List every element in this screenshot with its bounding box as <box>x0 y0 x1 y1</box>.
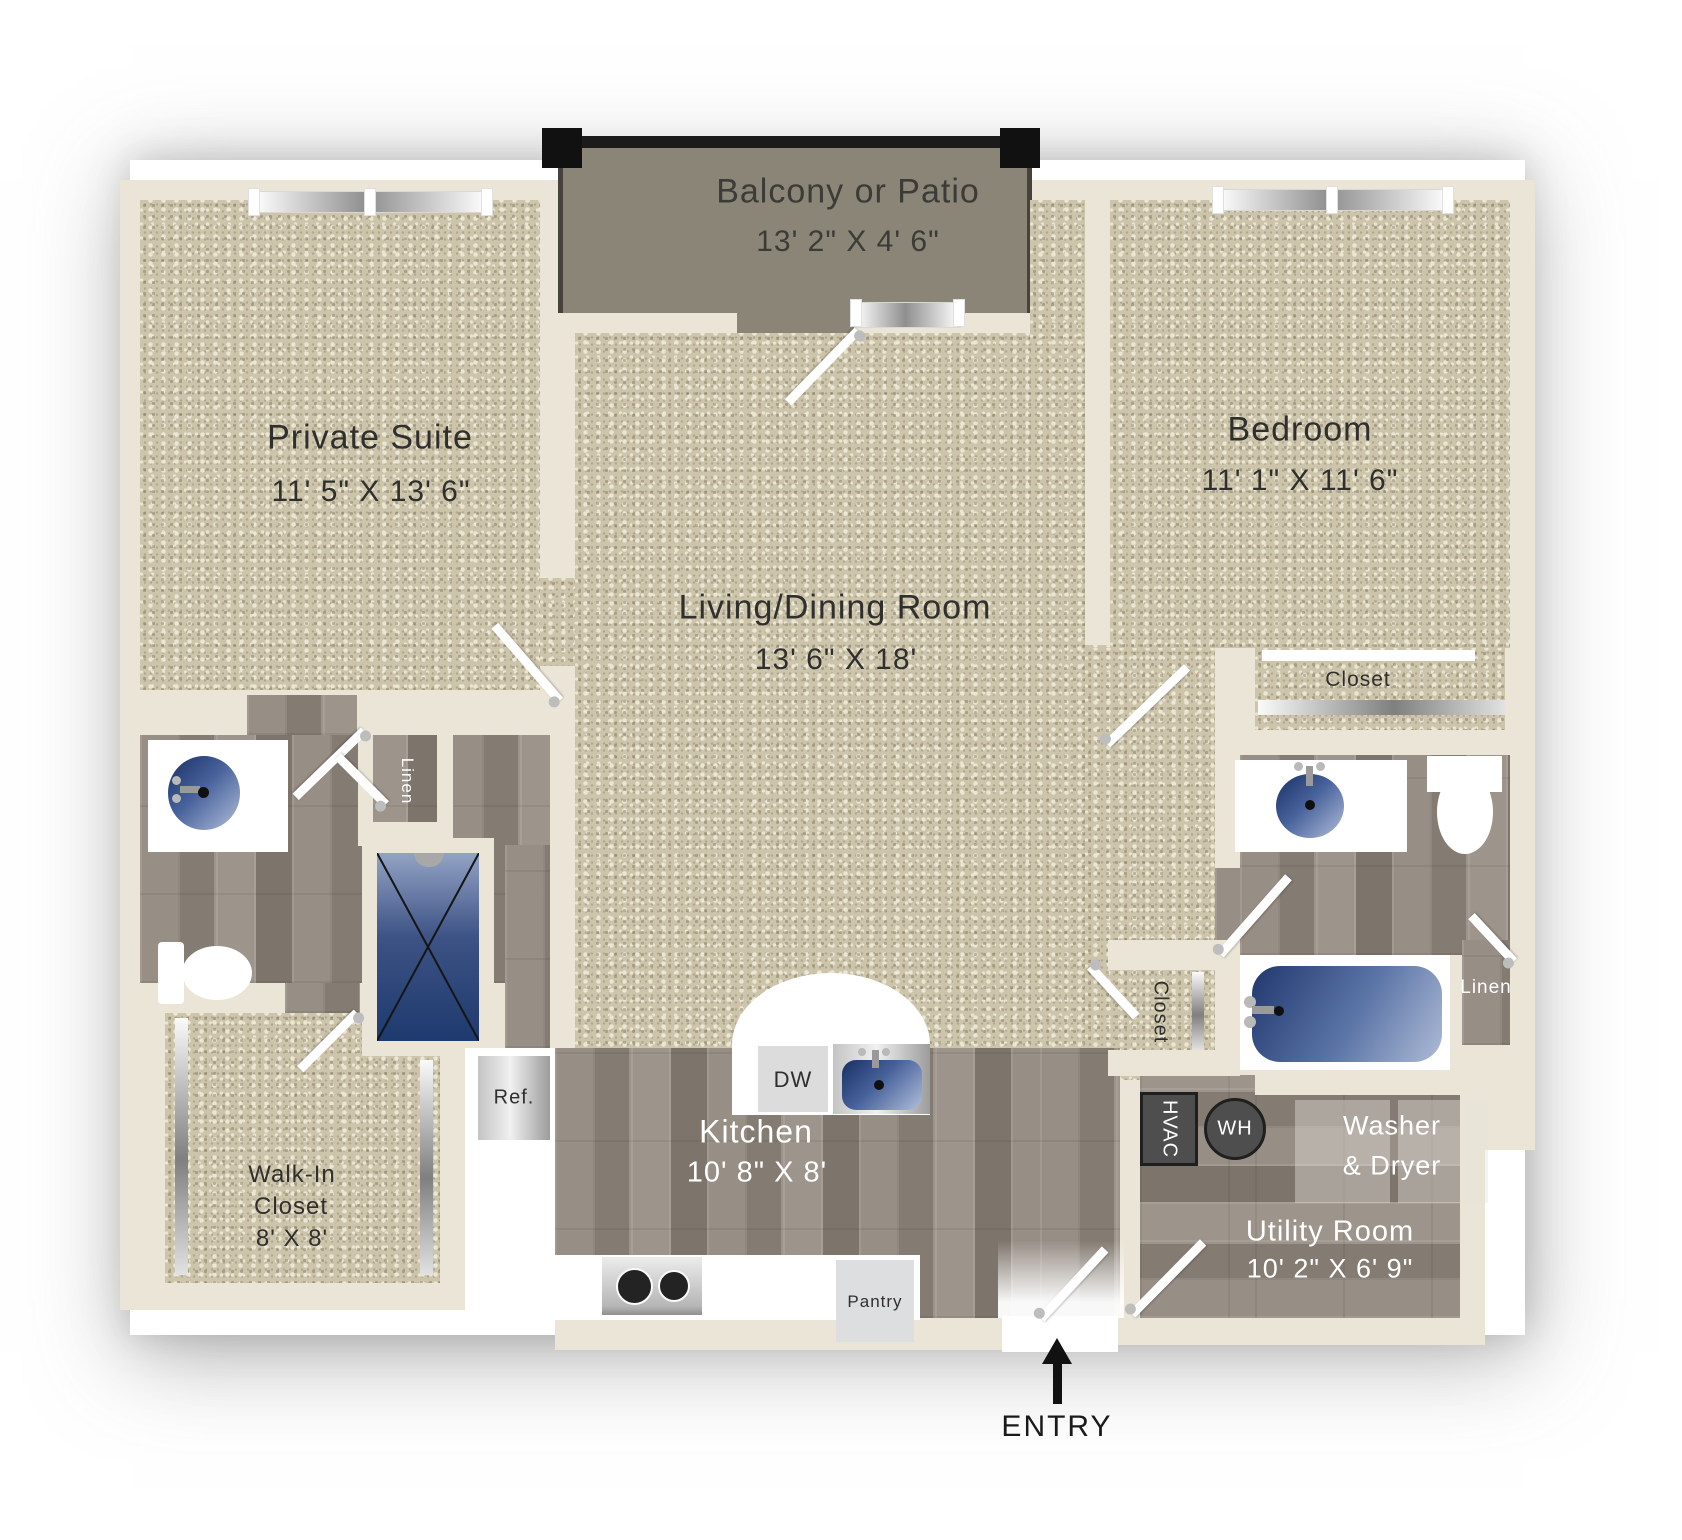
hall-closet-rod <box>1192 972 1204 1050</box>
bedroom-label: Bedroom <box>1228 411 1373 450</box>
kitchen-sink-drain <box>874 1080 884 1090</box>
utility-room-dims: 10' 2" X 6' 9" <box>1247 1254 1414 1285</box>
balcony-railing <box>552 136 1030 148</box>
entry-arrow-stem <box>1053 1362 1062 1404</box>
shower <box>377 853 479 1041</box>
bedroom-dims: 11' 1" X 11' 6" <box>1202 464 1399 498</box>
dishwasher-label: DW <box>774 1067 813 1093</box>
walkin-rod-right <box>420 1060 433 1275</box>
linen-left-wall-b <box>437 735 453 827</box>
utility-room-label: Utility Room <box>1246 1216 1414 1249</box>
linen-left-label: Linen <box>397 758 417 805</box>
bedroom-door-opening <box>1085 645 1110 648</box>
bedroom-closet-shelf <box>1262 650 1475 661</box>
living-dining-dims: 13' 6" X 18' <box>755 643 918 677</box>
refrigerator-label: Ref. <box>494 1087 535 1110</box>
burner-icon <box>616 1268 653 1305</box>
kitchen-dims: 10' 8" X 8' <box>687 1157 827 1190</box>
linen-right-label: Linen <box>1460 977 1512 999</box>
bath1-sink-drain <box>198 787 209 798</box>
walkin-opening <box>285 983 360 1013</box>
living-room-floor-right <box>1030 200 1085 340</box>
balcony-dims: 13' 2" X 4' 6" <box>756 225 940 259</box>
balcony-post-right <box>1000 128 1040 168</box>
pantry-label: Pantry <box>847 1292 902 1312</box>
walkin-label-line2: Closet <box>254 1193 328 1221</box>
tub-drain <box>1274 1006 1284 1016</box>
washer-label: Washer <box>1343 1111 1441 1142</box>
bedroom-closet-label: Closet <box>1325 668 1391 692</box>
burner-icon <box>658 1270 690 1302</box>
living-dining-label: Living/Dining Room <box>679 589 992 628</box>
floor-plan: Balcony or Patio 13' 2" X 4' 6" Private … <box>0 0 1682 1540</box>
toilet2-bowl <box>1437 770 1493 854</box>
suite-bath-opening <box>247 695 357 735</box>
balcony-post-left <box>542 128 582 168</box>
private-suite-label: Private Suite <box>267 419 473 458</box>
toilet1-tank <box>158 942 184 1004</box>
water-heater-label: WH <box>1217 1118 1252 1141</box>
balcony-opening <box>737 303 855 333</box>
hvac-label: HVAC <box>1158 1100 1181 1158</box>
hall-closet-label: Closet <box>1149 981 1172 1044</box>
kitchen-label: Kitchen <box>699 1114 813 1151</box>
private-suite-dims: 11' 5" X 13' 6" <box>272 475 471 509</box>
bedroom-window <box>1217 190 1449 210</box>
toilet1-bowl <box>182 946 252 1000</box>
entry-label: ENTRY <box>1001 1410 1112 1444</box>
living-room-floor <box>575 333 1085 1048</box>
hall-closet-wall-bottom <box>1108 1050 1240 1076</box>
suite-window <box>253 192 488 212</box>
balcony-label: Balcony or Patio <box>716 173 980 212</box>
balcony-window <box>855 303 960 327</box>
walkin-rod-left <box>175 1018 188 1275</box>
entry-arrow-icon <box>1042 1338 1072 1364</box>
bath1-hall-strip <box>505 845 550 1048</box>
bath2-sink-drain <box>1305 800 1315 810</box>
dryer-label: & Dryer <box>1343 1151 1442 1182</box>
suite-living-opening <box>540 578 575 666</box>
stove <box>602 1257 702 1315</box>
bedroom-closet-rod <box>1258 700 1505 715</box>
walkin-dims: 8' X 8' <box>256 1225 328 1253</box>
walkin-label-line1: Walk-In <box>248 1161 335 1189</box>
